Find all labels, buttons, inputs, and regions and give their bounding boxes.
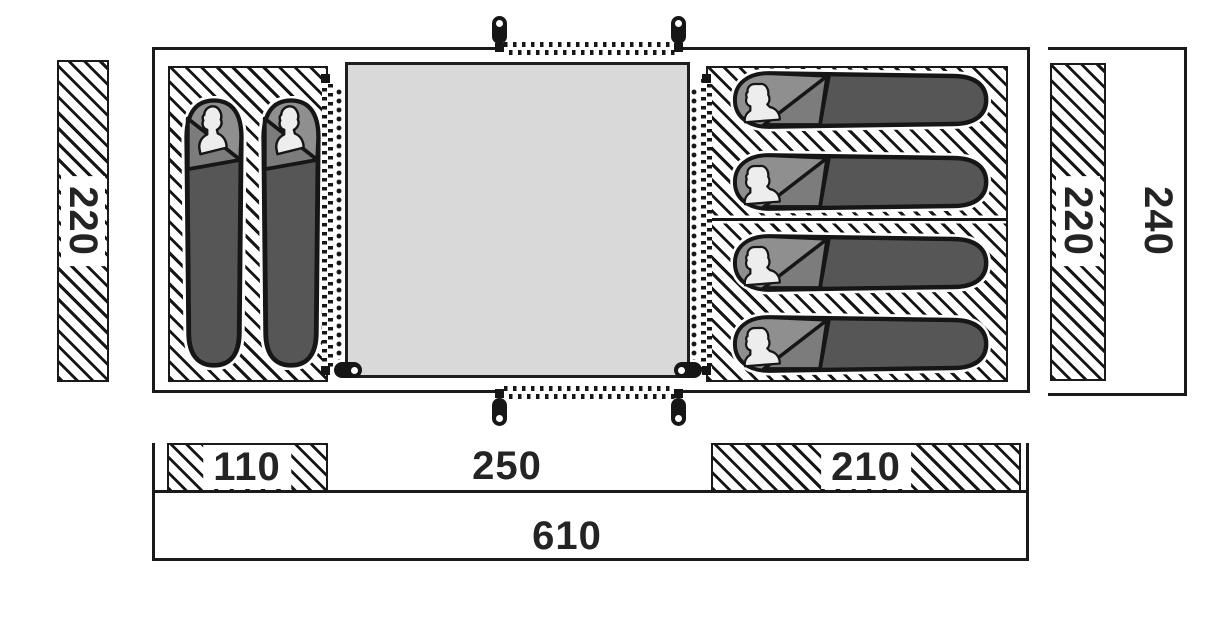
dim-label-right-bedroom-width-text: 210 <box>821 445 911 489</box>
tent-floorplan: 220 <box>0 0 1230 628</box>
zipper-stop <box>674 389 683 398</box>
zipper-stop <box>495 43 504 52</box>
dim-bracket-610-left <box>152 443 155 561</box>
left-bedroom-door-zipper <box>322 78 333 372</box>
sleeping-bag-right-4 <box>728 312 996 376</box>
zipper-stop <box>495 389 504 398</box>
dim-label-right-strip: 220 <box>1056 176 1100 266</box>
zipper-pull-dot <box>675 20 682 27</box>
right-bedroom-divider <box>708 218 1006 221</box>
dim-label-left-bedroom-width: 110 <box>203 445 291 489</box>
dim-bracket-240-bottom <box>1048 393 1187 396</box>
sleeping-bag-left-1 <box>179 96 249 370</box>
zipper-stop <box>321 366 330 375</box>
dim-label-outer-depth: 240 <box>1138 186 1178 256</box>
dim-baseline <box>154 490 1026 493</box>
dim-bracket-240-side <box>1184 47 1187 396</box>
sleeping-bag-right-1 <box>728 68 996 132</box>
living-area-groundsheet <box>345 62 690 378</box>
dim-bracket-240-top <box>1048 47 1187 50</box>
sleeping-bag-right-2 <box>728 150 996 214</box>
zipper-stop <box>702 366 711 375</box>
dim-label-right-bedroom-width: 210 <box>821 445 911 489</box>
dim-label-left-strip: 220 <box>61 176 105 266</box>
sleeping-bag-right-3 <box>728 231 996 295</box>
dim-label-total-width: 610 <box>532 516 602 556</box>
zipper-pull-top-left <box>492 16 507 44</box>
dim-bracket-610-bottom <box>152 558 1029 561</box>
dim-label-left-bedroom-width-text: 110 <box>203 445 291 489</box>
dim-label-left-strip-text: 220 <box>61 176 105 266</box>
zipper-pull-dot <box>496 20 503 27</box>
zipper-pull-dot <box>675 415 682 422</box>
dim-label-right-strip-text: 220 <box>1056 176 1100 266</box>
zipper-pull-dot <box>678 367 685 374</box>
dim-bracket-610-right <box>1026 443 1029 561</box>
zipper-pull-dot <box>351 367 358 374</box>
bottom-door-zipper <box>503 386 675 399</box>
zipper-pull-left-door <box>334 362 362 378</box>
zipper-stop <box>702 74 711 83</box>
left-bedroom-toggle-dots <box>336 88 342 360</box>
zipper-stop <box>674 43 683 52</box>
zipper-pull-bottom-right <box>671 398 686 426</box>
top-door-zipper <box>503 42 675 55</box>
zipper-pull-bottom-left <box>492 398 507 426</box>
dim-label-living-area-width: 250 <box>472 446 542 486</box>
zipper-pull-right-door <box>674 362 702 378</box>
sleeping-bag-left-2 <box>256 96 326 370</box>
right-bedroom-door-zipper <box>701 78 712 372</box>
right-bedroom-toggle-dots <box>691 88 697 360</box>
zipper-pull-top-right <box>671 16 686 44</box>
zipper-pull-dot <box>496 415 503 422</box>
zipper-stop <box>321 74 330 83</box>
